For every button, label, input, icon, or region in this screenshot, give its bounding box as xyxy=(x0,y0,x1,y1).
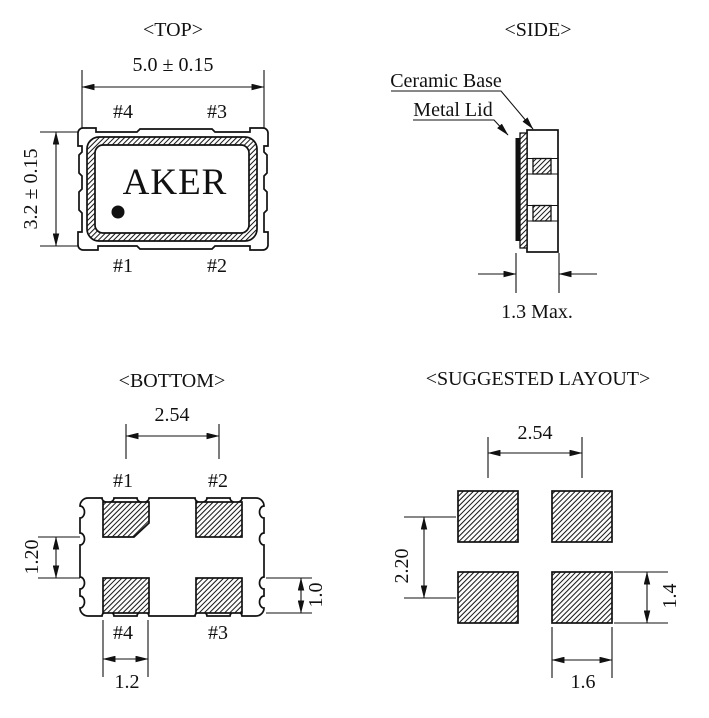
top-view-title: <TOP> xyxy=(143,19,203,41)
bottom-pad-width-dim-text: 1.2 xyxy=(115,671,140,693)
bottom-pad-4 xyxy=(103,578,149,613)
bottom-pad-height-dim-text: 1.0 xyxy=(305,583,327,608)
top-height-dim-text: 3.2 ± 0.15 xyxy=(20,149,42,230)
layout-pitch-x-dimension: 2.54 xyxy=(488,422,582,478)
package-outline-svg: <TOP> 5.0 ± 0.15 3.2 ± 0.15 #4 #3 #1 #2 … xyxy=(0,0,709,718)
bottom-pin3-label: #3 xyxy=(208,622,228,644)
side-view-title: <SIDE> xyxy=(504,19,571,41)
side-view: <SIDE> Ceramic Base Metal Lid xyxy=(390,19,597,323)
bottom-pad-2 xyxy=(196,502,242,537)
layout-view-title: <SUGGESTED LAYOUT> xyxy=(426,368,651,390)
bottom-pin4-label: #4 xyxy=(113,622,133,644)
top-pin3-label: #3 xyxy=(207,101,227,123)
pin1-marker-dot xyxy=(112,206,125,219)
bottom-view: <BOTTOM> 2.54 #1 #2 1.20 1.0 xyxy=(21,370,327,693)
layout-pad-bottom-right xyxy=(552,572,612,623)
bottom-view-title: <BOTTOM> xyxy=(119,370,226,392)
ceramic-base-label: Ceramic Base xyxy=(390,70,502,92)
side-wall-hatch xyxy=(520,133,527,248)
bottom-pitch-dim-text: 2.54 xyxy=(155,404,190,426)
top-width-dimension: 5.0 ± 0.15 xyxy=(82,54,264,129)
top-pin4-label: #4 xyxy=(113,101,133,123)
bottom-pin2-label: #2 xyxy=(208,470,228,492)
bottom-pad-3 xyxy=(196,578,242,613)
metal-lid-label: Metal Lid xyxy=(413,99,492,121)
layout-pad-top-left xyxy=(458,491,518,542)
bottom-pad-height-dimension: 1.0 xyxy=(266,578,327,613)
bottom-pitch-dimension: 2.54 xyxy=(126,404,219,459)
top-width-dim-text: 5.0 ± 0.15 xyxy=(133,54,214,76)
layout-pad-bottom-left xyxy=(458,572,518,623)
top-view: <TOP> 5.0 ± 0.15 3.2 ± 0.15 #4 #3 #1 #2 … xyxy=(20,19,268,277)
bottom-gap-dimension: 1.20 xyxy=(21,537,80,578)
layout-pad-width-dim-text: 1.6 xyxy=(571,671,596,693)
brand-marking: AKER xyxy=(123,162,228,203)
top-pin1-label: #1 xyxy=(113,255,133,277)
layout-pitch-y-dim-text: 2.20 xyxy=(391,549,413,584)
side-thickness-dimension: 1.3 Max. xyxy=(478,253,597,323)
layout-pad-width-dimension: 1.6 xyxy=(552,627,612,693)
top-pin2-label: #2 xyxy=(207,255,227,277)
bottom-gap-dim-text: 1.20 xyxy=(21,540,43,575)
top-height-dimension: 3.2 ± 0.15 xyxy=(20,132,82,246)
layout-pad-height-dimension: 1.4 xyxy=(614,572,681,623)
bottom-pin1-label: #1 xyxy=(113,470,133,492)
layout-pad-top-right xyxy=(552,491,612,542)
layout-pad-height-dim-text: 1.4 xyxy=(659,584,681,609)
layout-pitch-x-dim-text: 2.54 xyxy=(518,422,553,444)
metal-lid-profile xyxy=(516,138,521,241)
ceramic-base-profile xyxy=(527,130,558,252)
metal-lid-callout: Metal Lid xyxy=(413,99,508,135)
datasheet-drawing: <TOP> 5.0 ± 0.15 3.2 ± 0.15 #4 #3 #1 #2 … xyxy=(0,0,709,718)
layout-pitch-y-dimension: 2.20 xyxy=(391,517,456,598)
side-thickness-dim-text: 1.3 Max. xyxy=(501,301,573,323)
layout-view: <SUGGESTED LAYOUT> 2.54 2.20 1.4 xyxy=(391,368,681,693)
